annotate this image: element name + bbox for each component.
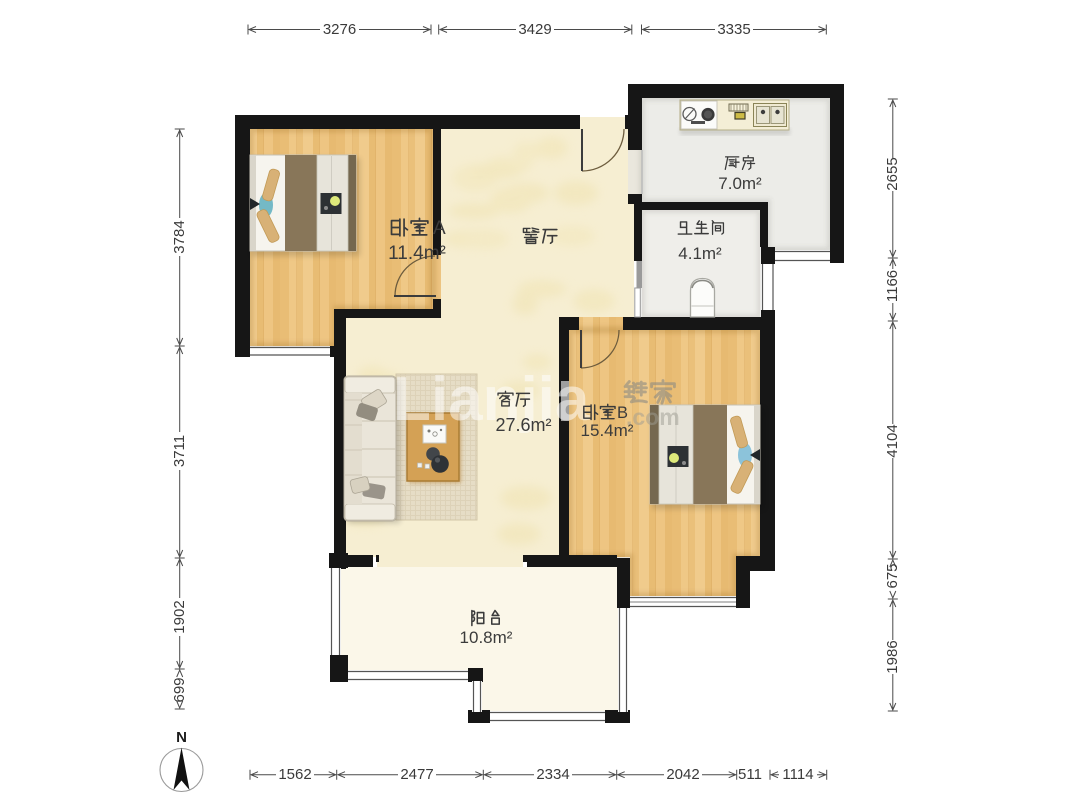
svg-text:1986: 1986 [884, 640, 901, 673]
svg-text:7.0m²: 7.0m² [718, 174, 762, 193]
svg-text:4.1m²: 4.1m² [678, 244, 722, 263]
svg-text:1562: 1562 [278, 766, 311, 783]
svg-text:3429: 3429 [518, 21, 551, 38]
svg-text:511: 511 [738, 766, 762, 783]
svg-text:2042: 2042 [666, 766, 699, 783]
svg-text:A: A [433, 218, 446, 239]
svg-text:675: 675 [884, 563, 901, 588]
svg-text:3711: 3711 [171, 435, 188, 467]
svg-text:1166: 1166 [884, 270, 901, 302]
svg-text:27.6m²: 27.6m² [495, 415, 551, 435]
svg-text:N: N [176, 729, 187, 746]
svg-text:3784: 3784 [171, 220, 188, 253]
svg-text:1114: 1114 [782, 766, 813, 783]
svg-text:Lianjia: Lianjia [393, 365, 590, 434]
svg-text:B: B [617, 404, 628, 422]
svg-text:3335: 3335 [717, 21, 750, 38]
svg-text:1902: 1902 [171, 600, 188, 633]
svg-text:10.8m²: 10.8m² [460, 628, 513, 647]
svg-text:.com: .com [626, 404, 680, 430]
svg-text:15.4m²: 15.4m² [581, 421, 634, 440]
svg-text:2477: 2477 [400, 766, 433, 783]
svg-text:2334: 2334 [536, 766, 569, 783]
svg-text:2655: 2655 [884, 157, 901, 190]
svg-text:3276: 3276 [323, 21, 356, 38]
svg-text:11.4m²: 11.4m² [388, 243, 446, 264]
svg-text:4104: 4104 [884, 424, 901, 457]
svg-text:699: 699 [171, 677, 188, 702]
